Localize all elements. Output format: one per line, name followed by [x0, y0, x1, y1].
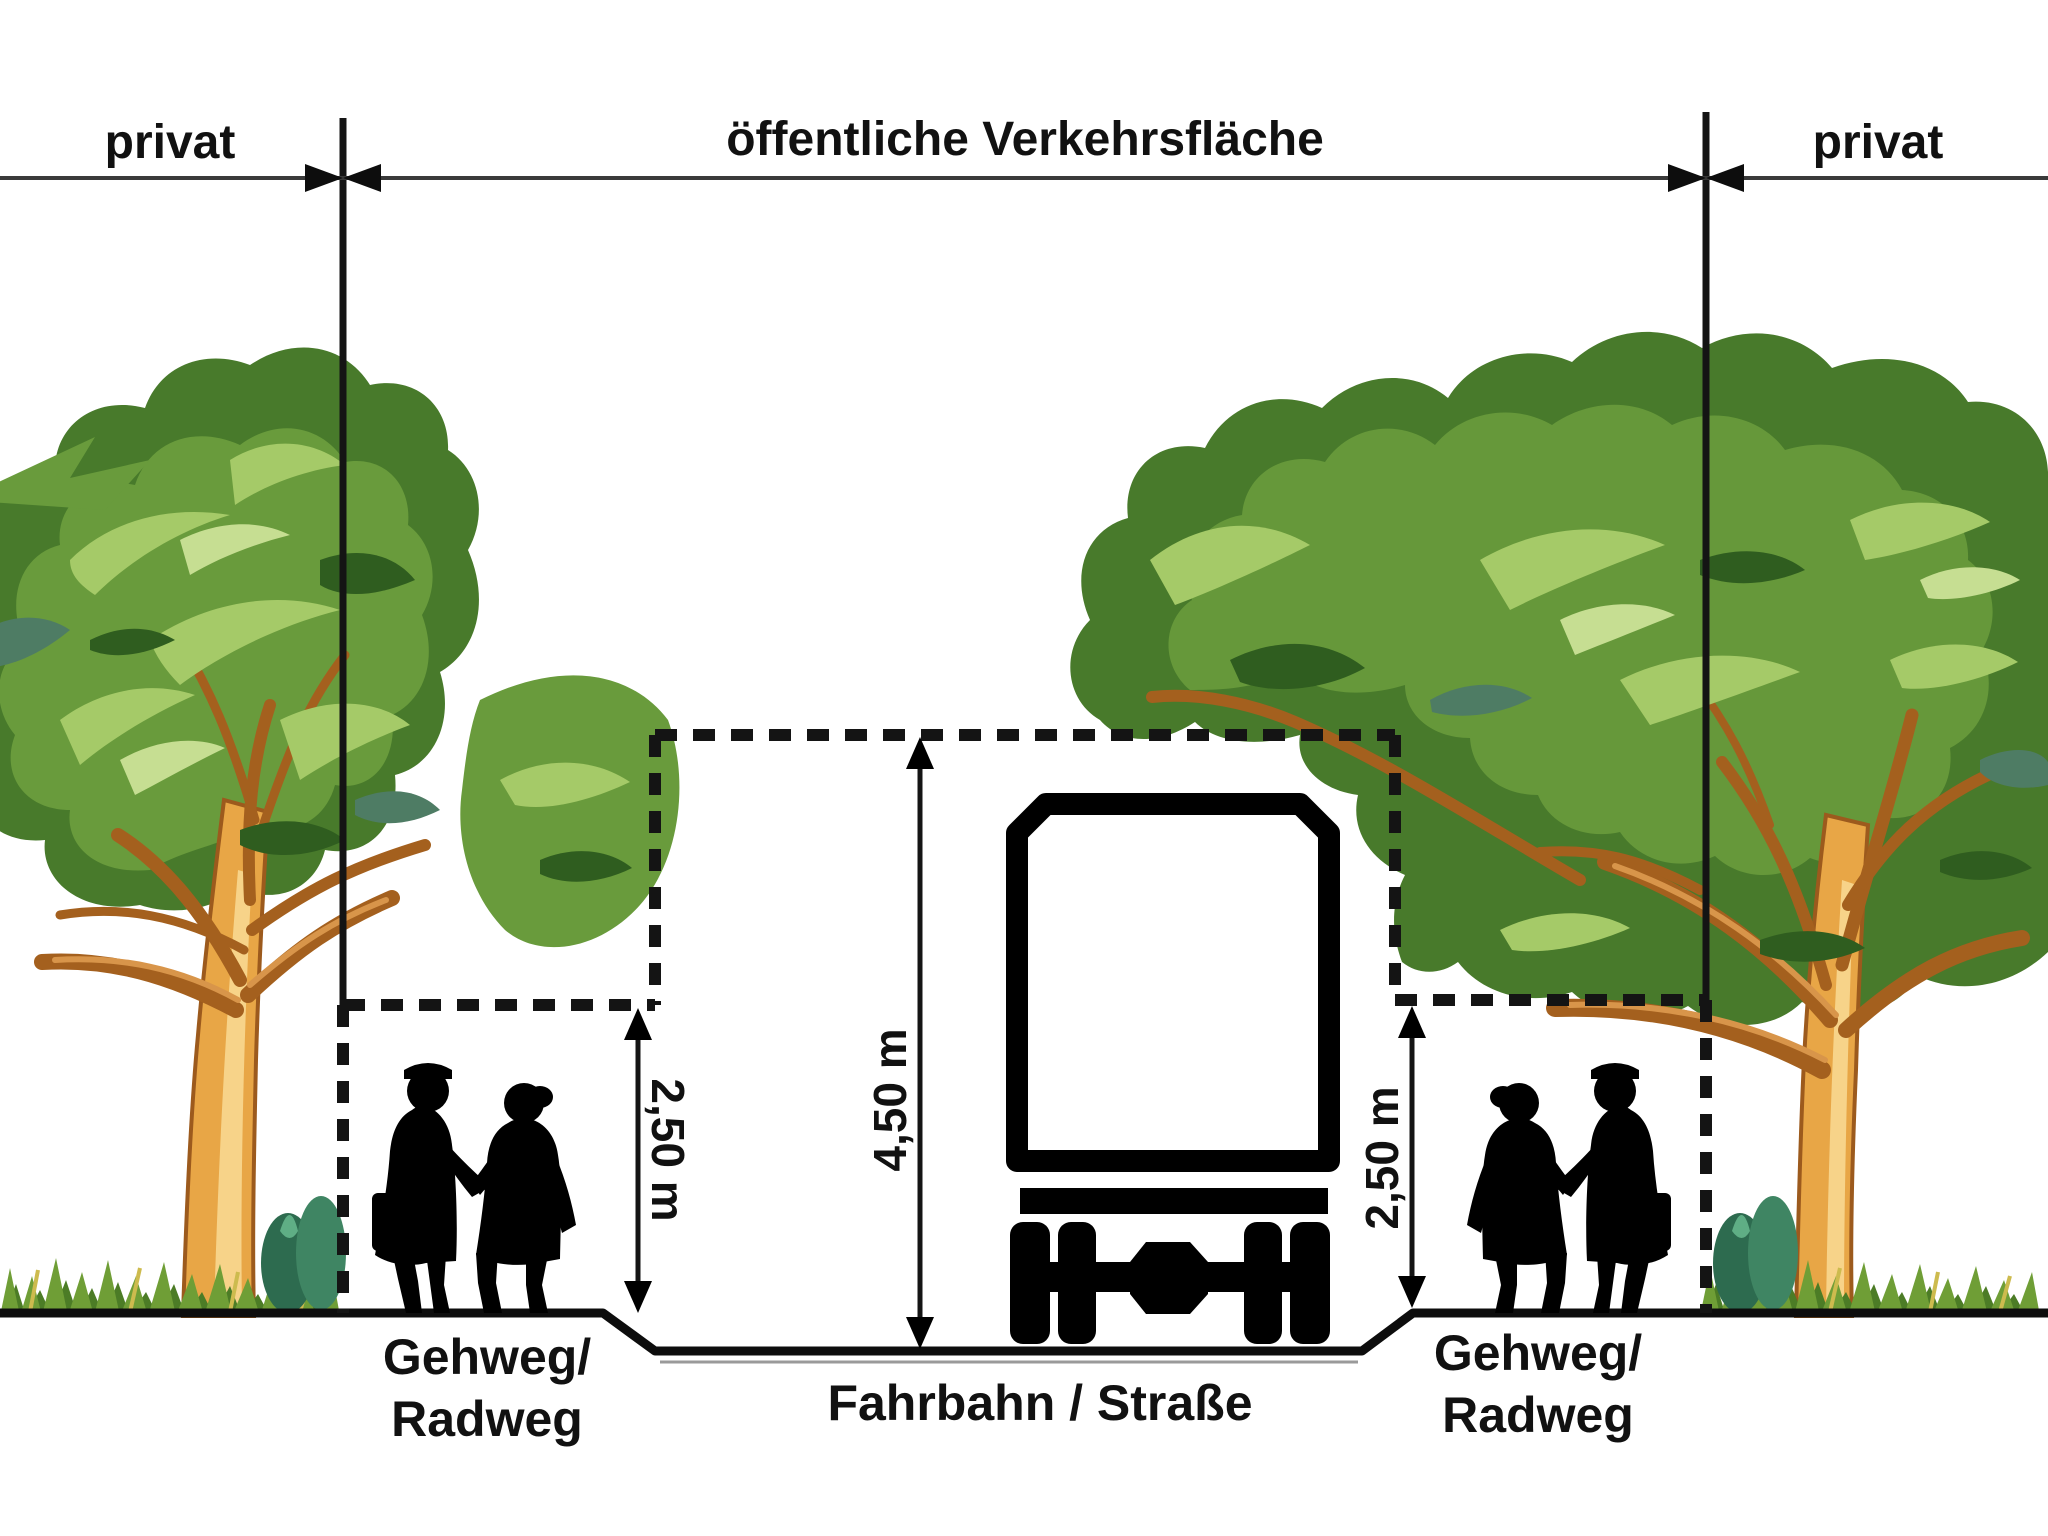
- arrowhead-icon: [1398, 1276, 1426, 1308]
- label-clearance-road: 4,50 m: [864, 1028, 916, 1171]
- top-dimension-line: privat öffentliche Verkehrsfläche privat: [0, 113, 2048, 192]
- label-footpath-left-line2: Radweg: [391, 1391, 583, 1447]
- arrowhead-icon: [1398, 1006, 1426, 1038]
- arrowhead-icon: [343, 164, 381, 192]
- label-clearance-path-right: 2,50 m: [1356, 1086, 1408, 1229]
- label-roadway: Fahrbahn / Straße: [827, 1375, 1252, 1431]
- pedestrian-couple-left: [372, 1063, 576, 1313]
- label-private-right: privat: [1813, 116, 1944, 169]
- arrowhead-icon: [1668, 164, 1706, 192]
- label-clearance-path-left: 2,50 m: [642, 1078, 694, 1221]
- truck-differential: [1130, 1242, 1208, 1314]
- arrowhead-icon: [1706, 164, 1744, 192]
- left-bush: [261, 1196, 346, 1313]
- arrowhead-icon: [624, 1281, 652, 1313]
- label-public-area: öffentliche Verkehrsfläche: [726, 113, 1324, 166]
- label-footpath-right-line1: Gehweg/: [1434, 1325, 1642, 1381]
- pedestrian-couple-right: [1467, 1063, 1671, 1313]
- bottom-labels: Gehweg/ Radweg Fahrbahn / Straße Gehweg/…: [383, 1325, 1642, 1447]
- right-bush: [1713, 1196, 1798, 1313]
- street-clearance-diagram: privat öffentliche Verkehrsfläche privat…: [0, 0, 2048, 1536]
- label-footpath-right-line2: Radweg: [1442, 1387, 1634, 1443]
- truck-rear-silhouette: [1010, 804, 1330, 1344]
- label-footpath-left-line1: Gehweg/: [383, 1329, 591, 1385]
- height-dimension-path-right: 2,50 m: [1356, 1006, 1426, 1308]
- arrowhead-icon: [305, 164, 343, 192]
- diagram-canvas: privat öffentliche Verkehrsfläche privat…: [0, 0, 2048, 1536]
- height-dimension-road: 4,50 m: [864, 737, 934, 1349]
- truck-chassis: [1020, 1188, 1328, 1214]
- arrowhead-icon: [906, 737, 934, 769]
- truck-box: [1017, 804, 1329, 1161]
- arrowhead-icon: [624, 1008, 652, 1040]
- arrowhead-icon: [906, 1317, 934, 1349]
- label-private-left: privat: [105, 116, 236, 169]
- height-dimension-path-left: 2,50 m: [624, 1008, 694, 1313]
